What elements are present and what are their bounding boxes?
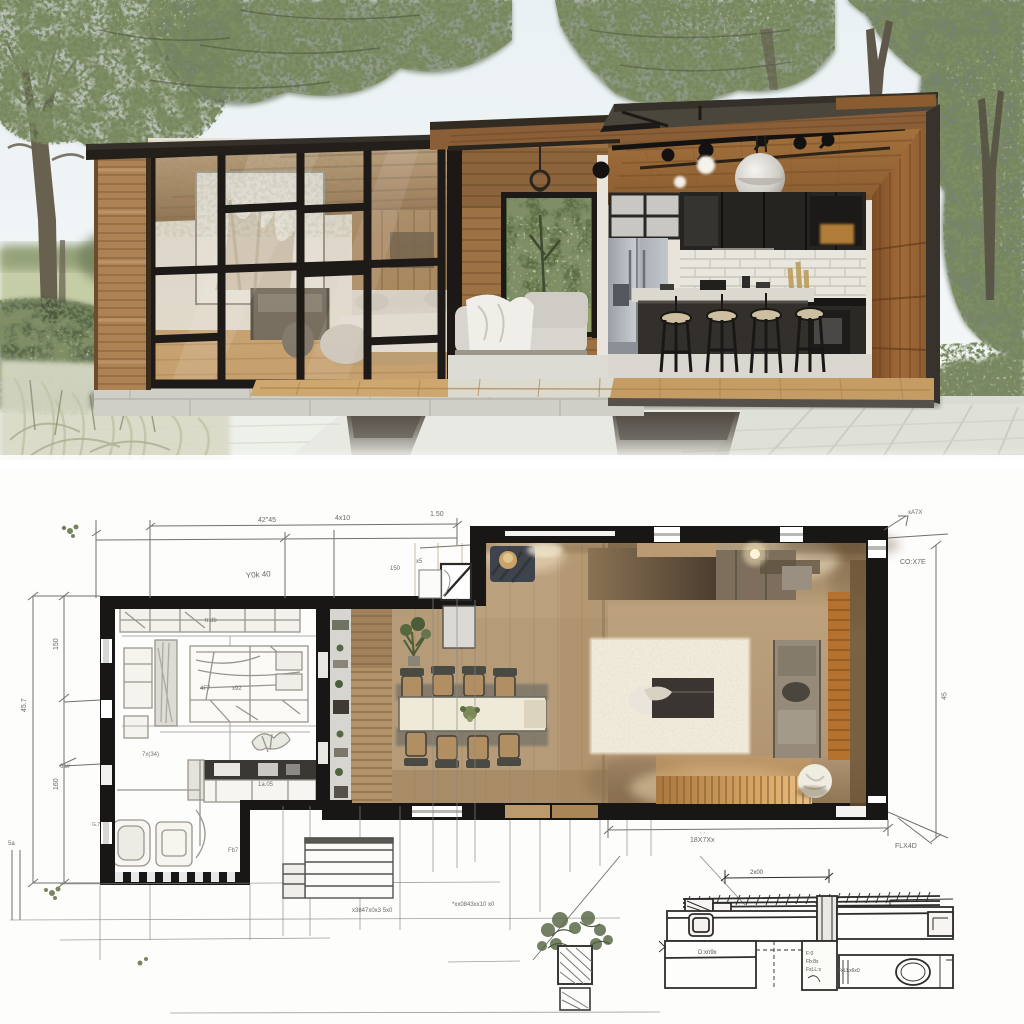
svg-text:1.50: 1.50 bbox=[430, 511, 444, 518]
svg-text:x92: x92 bbox=[232, 686, 242, 692]
svg-text:FxLLx6x0: FxLLx6x0 bbox=[838, 968, 860, 974]
svg-text:45.7: 45.7 bbox=[21, 698, 28, 712]
svg-text:4x10: 4x10 bbox=[335, 515, 350, 522]
svg-text:Fb:8x: Fb:8x bbox=[806, 959, 819, 965]
svg-text:45: 45 bbox=[941, 692, 948, 700]
svg-text:18X7Xx: 18X7Xx bbox=[690, 837, 715, 844]
svg-text:tr.db: tr.db bbox=[205, 618, 217, 624]
svg-text:*xx0843xx10 x0: *xx0843xx10 x0 bbox=[452, 902, 495, 908]
svg-text:FLX4D: FLX4D bbox=[895, 843, 917, 850]
svg-text:1a.05: 1a.05 bbox=[258, 782, 274, 788]
svg-text:2x00: 2x00 bbox=[750, 870, 764, 876]
svg-text:150: 150 bbox=[390, 566, 401, 572]
svg-text:x5: x5 bbox=[416, 559, 423, 565]
svg-text:. .: . . bbox=[700, 829, 705, 835]
svg-text:Y0k 40: Y0k 40 bbox=[246, 569, 272, 580]
svg-text:Fb7: Fb7 bbox=[228, 848, 239, 854]
svg-text:4F7: 4F7 bbox=[200, 686, 211, 692]
svg-text:FxLL:x: FxLL:x bbox=[806, 967, 822, 973]
svg-text:x3847x0x3 5x0: x3847x0x3 5x0 bbox=[352, 908, 393, 914]
svg-text:CO:X7E: CO:X7E bbox=[900, 559, 926, 566]
svg-text:F:0: F:0 bbox=[806, 951, 813, 957]
svg-text:42"45: 42"45 bbox=[258, 517, 276, 524]
svg-text:6a#: 6a# bbox=[60, 764, 71, 770]
svg-text:5a: 5a bbox=[8, 841, 15, 847]
svg-text:G.7: G.7 bbox=[92, 822, 100, 828]
svg-text:150: 150 bbox=[53, 638, 60, 650]
svg-text:7x(34): 7x(34) bbox=[142, 752, 159, 758]
svg-text:D:xn9x: D:xn9x bbox=[698, 950, 717, 956]
svg-text:160: 160 bbox=[53, 778, 60, 790]
svg-text:xA7X: xA7X bbox=[908, 510, 922, 516]
